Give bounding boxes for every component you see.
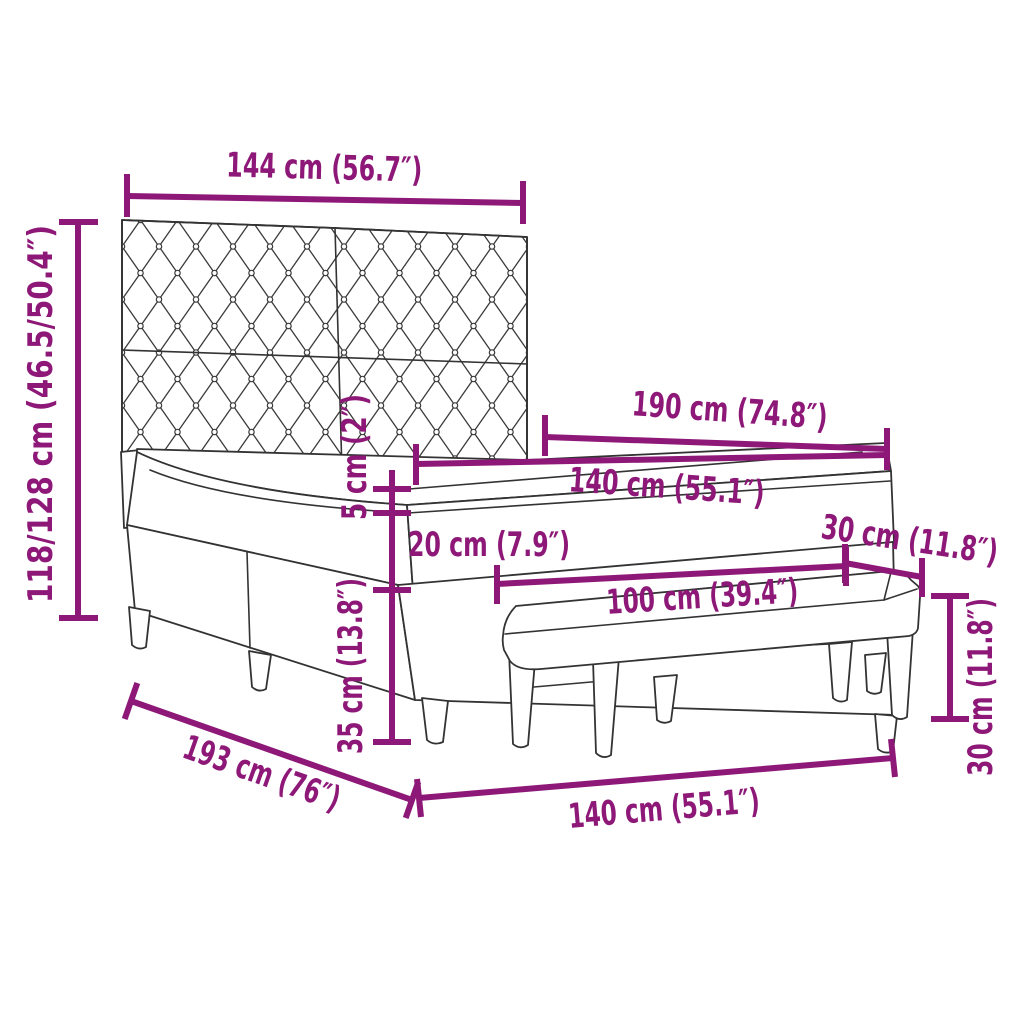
bench-leg — [654, 675, 677, 723]
total-height-label: 118/128 cm (46.5/50.4″) — [21, 225, 61, 603]
diagram-svg: 144 cm (56.7″) 118/128 cm (46.5/50.4″) 1… — [0, 0, 1024, 1024]
bed-leg — [422, 698, 448, 744]
mattress-height-label: 20 cm (7.9″) — [408, 525, 570, 565]
bench-leg — [887, 629, 913, 719]
bed-length-label: 190 cm (74.8″) — [631, 384, 829, 438]
base-height-label: 35 cm (13.8″) — [331, 578, 371, 754]
frame-width-label: 140 cm (55.1″) — [567, 781, 762, 837]
bed-leg — [129, 607, 150, 649]
dim-total-height — [59, 222, 98, 618]
headboard-width-label: 144 cm (56.7″) — [226, 145, 423, 190]
frame-length-label: 193 cm (76″) — [178, 728, 346, 820]
bench-leg — [593, 657, 619, 757]
dimension-diagram: 144 cm (56.7″) 118/128 cm (46.5/50.4″) 1… — [0, 0, 1024, 1024]
headboard-tufting-pattern — [122, 220, 527, 472]
topper-height-label: 5 cm (2″) — [335, 394, 375, 520]
bench-height-label: 30 cm (11.8″) — [961, 598, 1001, 776]
bed-leg — [249, 651, 271, 691]
